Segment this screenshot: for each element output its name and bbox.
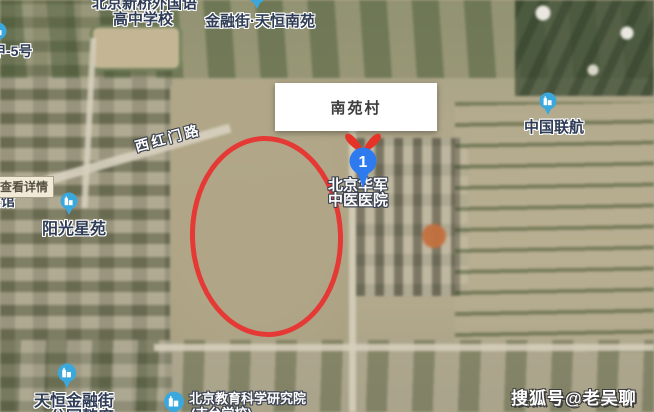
poi-label-address-no[interactable]: 甲-5号: [0, 41, 32, 61]
poi-label-estate-bottom-line2[interactable]: 公园懿府: [50, 403, 114, 412]
building-poi-icon[interactable]: [248, 0, 266, 9]
poi-label-institute-line2[interactable]: (丰台学校): [191, 403, 252, 412]
industrial-tanks-northeast: [515, 0, 654, 96]
building-poi-icon[interactable]: [60, 192, 78, 215]
school-sports-field: [90, 25, 182, 71]
building-poi-icon[interactable]: [163, 391, 185, 412]
info-window[interactable]: 南苑村: [275, 83, 437, 131]
poi-label-estate-left[interactable]: 阳光星苑: [42, 215, 106, 239]
marker-number: 1: [359, 154, 368, 171]
poi-label-hospital-line2[interactable]: 中医医院: [328, 189, 388, 210]
building-poi-icon[interactable]: [57, 363, 77, 388]
poi-label-airline[interactable]: 中国联航: [524, 116, 584, 137]
poi-label-school-line2[interactable]: 高中学校: [113, 8, 173, 29]
info-window-title: 南苑村: [330, 97, 381, 118]
watermark-sohu: 搜狐号@老吴聊房: [511, 384, 654, 412]
map-canvas[interactable]: 北京新桥外国语 高中学校 金融街·天恒南苑 甲-5号 西红门路 可查看详情 宾馆…: [0, 0, 654, 412]
farm-fields-east: [455, 102, 654, 352]
details-tooltip: 可查看详情: [0, 176, 54, 198]
road-horizontal: [154, 344, 654, 351]
building-poi-icon[interactable]: [539, 92, 557, 115]
poi-label-estate-top[interactable]: 金融街·天恒南苑: [205, 10, 315, 31]
result-marker-1[interactable]: 1: [341, 131, 385, 189]
